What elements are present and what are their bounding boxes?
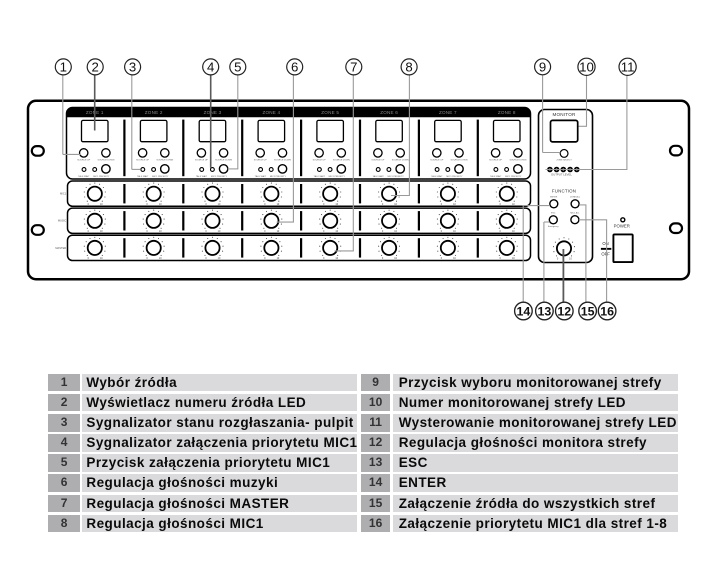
svg-text:MONITOR: MONITOR [552, 112, 575, 117]
svg-text:MIC1 PRIORITY: MIC1 PRIORITY [446, 176, 463, 178]
svg-text:FUNCTION: FUNCTION [552, 189, 576, 194]
svg-text:MIC1 PRIORITY: MIC1 PRIORITY [270, 176, 287, 178]
svg-text:SOURCE DOWN: SOURCE DOWN [274, 160, 291, 162]
svg-text:ZONE 8: ZONE 8 [498, 110, 516, 115]
svg-text:SOURCE UP: SOURCE UP [77, 160, 91, 162]
svg-text:MIC1 PRIORITY: MIC1 PRIORITY [93, 176, 110, 178]
svg-text:SOURCE UP: SOURCE UP [254, 160, 268, 162]
svg-text:ON: ON [602, 241, 608, 246]
svg-text:SOURCE DOWN: SOURCE DOWN [97, 160, 114, 162]
svg-text:MUSIC: MUSIC [58, 219, 66, 223]
svg-text:SOURCE DOWN: SOURCE DOWN [333, 160, 350, 162]
svg-text:MIC1 ALL: MIC1 ALL [570, 212, 580, 215]
svg-text:10: 10 [579, 60, 594, 75]
svg-text:MIC1: MIC1 [60, 192, 67, 196]
svg-text:TALK WAIT: TALK WAIT [314, 175, 326, 178]
svg-text:OFF: OFF [601, 251, 610, 256]
svg-text:OUTPUT LEVEL: OUTPUT LEVEL [551, 172, 572, 176]
svg-text:7: 7 [350, 60, 357, 75]
svg-text:ZONE 2: ZONE 2 [145, 110, 163, 115]
svg-text:5: 5 [234, 60, 241, 75]
svg-text:ZONE 6: ZONE 6 [380, 110, 398, 115]
svg-text:SOURCE UP: SOURCE UP [195, 160, 209, 162]
svg-text:TALK WAIT: TALK WAIT [490, 175, 502, 178]
svg-text:SOURCE DOWN: SOURCE DOWN [509, 160, 526, 162]
svg-text:9: 9 [539, 60, 546, 75]
svg-text:TALK WAIT: TALK WAIT [78, 175, 90, 178]
svg-text:ENTER: ENTER [550, 197, 558, 199]
svg-text:ESC: ESC [551, 213, 556, 215]
svg-text:12: 12 [557, 305, 571, 319]
svg-text:1: 1 [60, 60, 67, 75]
svg-text:MIC1 PRIORITY: MIC1 PRIORITY [152, 176, 169, 178]
svg-text:SOURCE UP: SOURCE UP [313, 160, 327, 162]
svg-text:ZONE SELECT: ZONE SELECT [556, 159, 572, 161]
svg-text:SOURCE DOWN: SOURCE DOWN [215, 160, 232, 162]
svg-text:8: 8 [405, 60, 412, 75]
svg-text:SOURCE DOWN: SOURCE DOWN [156, 160, 173, 162]
svg-text:11: 11 [621, 60, 635, 75]
svg-text:4: 4 [207, 60, 214, 75]
svg-text:14: 14 [517, 305, 531, 319]
svg-text:MASTER: MASTER [55, 246, 66, 250]
svg-text:Emergency: Emergency [548, 225, 559, 228]
svg-text:16: 16 [600, 305, 614, 319]
svg-text:ZONE 5: ZONE 5 [321, 110, 339, 115]
svg-text:ZONE ALL: ZONE ALL [570, 196, 581, 199]
svg-text:MIC1 PRIORITY: MIC1 PRIORITY [388, 176, 405, 178]
svg-text:ZONE 4: ZONE 4 [263, 110, 281, 115]
svg-text:TALK WAIT: TALK WAIT [137, 175, 149, 178]
svg-text:13: 13 [538, 305, 552, 319]
svg-text:SOURCE UP: SOURCE UP [136, 160, 150, 162]
svg-text:15: 15 [581, 305, 595, 319]
svg-text:SOURCE UP: SOURCE UP [489, 160, 503, 162]
svg-text:MIC1 PRIORITY: MIC1 PRIORITY [505, 176, 522, 178]
svg-text:TALK WAIT: TALK WAIT [255, 175, 267, 178]
svg-text:MIC1 PRIORITY: MIC1 PRIORITY [329, 176, 346, 178]
svg-text:SOURCE UP: SOURCE UP [430, 160, 444, 162]
svg-text:TALK WAIT: TALK WAIT [372, 175, 384, 178]
svg-text:MIC1 PRIORITY: MIC1 PRIORITY [211, 176, 228, 178]
svg-text:2: 2 [92, 60, 99, 75]
svg-text:TALK WAIT: TALK WAIT [196, 175, 208, 178]
svg-text:SOURCE DOWN: SOURCE DOWN [392, 160, 409, 162]
svg-text:TALK WAIT: TALK WAIT [431, 175, 443, 178]
svg-text:SOURCE DOWN: SOURCE DOWN [451, 160, 468, 162]
svg-text:ZONE 3: ZONE 3 [204, 110, 222, 115]
svg-text:6: 6 [291, 60, 298, 75]
svg-text:ZONE 7: ZONE 7 [439, 110, 457, 115]
svg-text:3: 3 [129, 60, 136, 75]
svg-text:POWER: POWER [614, 223, 630, 228]
svg-text:SOURCE UP: SOURCE UP [371, 160, 385, 162]
